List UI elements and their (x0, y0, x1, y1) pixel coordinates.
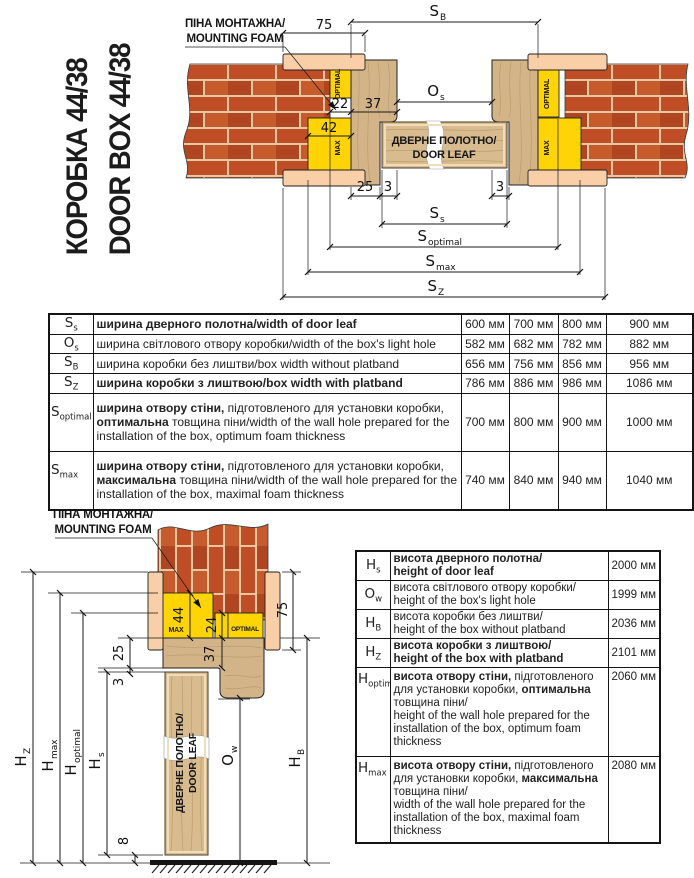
dim-description: ширина коробки з лиштвою/box width with … (93, 374, 461, 394)
bottom-section-diagram: ДВЕРНЕ ПОЛОТНО/ DOOR LEAF MAX OPTIMAL ПІ… (0, 498, 355, 878)
dim-value: 800 мм (509, 393, 558, 451)
dim-symbol: Smax (49, 451, 93, 510)
table-row: Owвисота світлового отвору коробки/heigh… (356, 581, 660, 610)
svg-text:O: O (219, 754, 237, 766)
dim-value: 2060 мм (608, 668, 660, 757)
svg-text:B: B (440, 13, 446, 23)
dim-value: 782 мм (558, 334, 606, 354)
dim-label-sb: S B (429, 2, 446, 23)
dim-label-hs: H s (86, 752, 107, 770)
svg-text:B: B (297, 749, 307, 755)
svg-text:s: s (97, 752, 107, 757)
table-row: Hoptimalвисота отвору стіни, підготовлен… (356, 668, 660, 757)
optimal-label: OPTIMAL (544, 78, 551, 109)
dim-value: 882 мм (606, 334, 693, 354)
table-row: Ssширина дверного полотна/width of door … (49, 314, 693, 334)
dim-42: 42 (321, 121, 338, 136)
dim-37: 37 (365, 97, 382, 112)
door-leaf-label-uk: ДВЕРНЕ ПОЛОТНО/ (174, 713, 186, 813)
svg-text:Z: Z (438, 288, 444, 298)
dim-75: 75 (316, 18, 333, 33)
dim-label-hb: H B (286, 749, 307, 768)
dim-symbol: Hmax (356, 757, 390, 844)
page-title-uk: КОРОБКА 44/38 (56, 53, 99, 255)
mounting-foam-label-uk: ПІНА МОНТАЖНА/ (185, 18, 286, 30)
dim-symbol: Soptimal (49, 393, 93, 451)
svg-text:S: S (417, 227, 427, 245)
dim-44: 44 (172, 607, 187, 624)
dim-75: 75 (276, 602, 291, 619)
dim-value: 940 мм (558, 451, 606, 510)
dim-value: 956 мм (606, 354, 693, 374)
optimal-label: OPTIMAL (231, 626, 259, 633)
svg-text:H: H (286, 756, 304, 767)
table-row: SBширина коробки без лиштви/box width wi… (49, 354, 693, 374)
dim-value: 800 мм (558, 314, 606, 334)
dim-description: висота отвору стіни, підготовленогодля у… (390, 757, 608, 844)
dim-symbol: SZ (49, 374, 93, 394)
page-title: КОРОБКА 44/38 DOOR BOX 44/38 (56, 53, 148, 255)
dim-description: ширина отвору стіни, підготовленого для … (93, 451, 461, 510)
dim-3-right: 3 (496, 180, 504, 195)
dim-value: 1000 мм (606, 393, 693, 451)
dim-37: 37 (203, 646, 218, 663)
mounting-foam-label-en: MOUNTING FOAM (186, 33, 283, 45)
dim-description: висота отвору стіни, підготовленогодля у… (390, 668, 608, 757)
svg-text:optimal: optimal (428, 238, 462, 248)
svg-text:H: H (62, 764, 80, 775)
dim-label-soptimal: S optimal (417, 227, 462, 248)
table-row: Hsвисота дверного полотна/height of door… (356, 551, 660, 581)
dim-value: 2080 мм (608, 757, 660, 844)
dim-25: 25 (357, 180, 374, 195)
dim-label-sz: S Z (427, 277, 444, 298)
door-leaf-label-en: DOOR LEAF (187, 732, 199, 793)
dim-label-hoptimal: H optimal (62, 729, 83, 776)
dim-value: 986 мм (558, 374, 606, 394)
dim-label-smax: S max (425, 252, 456, 273)
dim-value: 900 мм (558, 393, 606, 451)
table-row: HBвисота коробки без лиштви/height of th… (356, 610, 660, 639)
dim-symbol: HB (356, 610, 390, 639)
dim-label-ss: S s (429, 204, 445, 225)
dim-value: 2101 мм (608, 639, 660, 668)
dim-value: 856 мм (558, 354, 606, 374)
door-leaf: ДВЕРНЕ ПОЛОТНО/ DOOR LEAF (164, 672, 209, 855)
dim-symbol: Os (49, 334, 93, 354)
door-leaf-label-en: DOOR LEAF (413, 149, 476, 161)
dim-25: 25 (112, 645, 127, 662)
dim-symbol: Ss (49, 314, 93, 334)
table-row: Osширина світлового отвору коробки/width… (49, 334, 693, 354)
dim-description: ширина отвору стіни, підготовленого для … (93, 393, 461, 451)
svg-text:optimal: optimal (73, 729, 83, 763)
svg-text:O: O (427, 82, 439, 100)
top-section-diagram: ДВЕРНЕ ПОЛОТНО/ DOOR LEAF OPTIMAL MAX OP… (180, 0, 694, 310)
table-row: Smaxширина отвору стіни, підготовленого … (49, 451, 693, 510)
optimal-label: OPTIMAL (335, 68, 342, 99)
dim-label-hmax: H max (39, 739, 60, 772)
max-label: MAX (544, 140, 551, 155)
catalog-page: КОРОБКА 44/38 DOOR BOX 44/38 (0, 0, 694, 878)
dim-3-left: 3 (384, 180, 392, 195)
dim-value: 886 мм (509, 374, 558, 394)
dim-value: 900 мм (606, 314, 693, 334)
dim-description: ширина світлового отвору коробки/width o… (93, 334, 461, 354)
max-label: MAX (169, 627, 184, 634)
svg-text:H: H (86, 758, 104, 769)
dim-symbol: Hs (356, 551, 390, 581)
dim-symbol: Hoptimal (356, 668, 390, 757)
dim-value: 2000 мм (608, 551, 660, 581)
dim-value: 1999 мм (608, 581, 660, 610)
svg-text:s: s (440, 215, 445, 225)
svg-text:S: S (429, 2, 439, 20)
dim-symbol: HZ (356, 639, 390, 668)
dim-description: висота коробки з лиштвою/height of the b… (390, 639, 608, 668)
door-leaf: ДВЕРНЕ ПОЛОТНО/ DOOR LEAF (382, 121, 507, 169)
page-title-en: DOOR BOX 44/38 (99, 53, 142, 255)
table-row: Soptimalширина отвору стіни, підготовлен… (49, 393, 693, 451)
max-label: MAX (335, 140, 342, 155)
dim-value: 656 мм (461, 354, 509, 374)
svg-text:max: max (50, 739, 60, 759)
dim-label-os: O s (427, 82, 445, 103)
dim-label-ow: O w (219, 746, 240, 766)
svg-text:max: max (436, 263, 456, 273)
dim-description: ширина дверного полотна/width of door le… (93, 314, 461, 334)
mounting-foam-label-uk: ПІНА МОНТАЖНА/ (53, 509, 154, 521)
svg-text:s: s (440, 93, 445, 103)
dim-22: 22 (332, 97, 349, 112)
dim-label-hz: H Z (12, 748, 33, 767)
height-table: Hsвисота дверного полотна/height of door… (355, 550, 661, 844)
table-row: Hmaxвисота отвору стіни, підготовленогод… (356, 757, 660, 844)
dim-value: 700 мм (509, 314, 558, 334)
svg-text:S: S (429, 204, 439, 222)
svg-text:S: S (427, 277, 437, 295)
dim-description: ширина коробки без лиштви/box width with… (93, 354, 461, 374)
svg-text:w: w (230, 746, 240, 753)
dim-3: 3 (112, 678, 127, 686)
brick-wall-right (565, 64, 689, 178)
dim-symbol: SB (49, 354, 93, 374)
dim-value: 700 мм (461, 393, 509, 451)
dim-value: 2036 мм (608, 610, 660, 639)
dim-value: 600 мм (461, 314, 509, 334)
svg-text:H: H (12, 755, 30, 766)
floor (150, 860, 277, 873)
mounting-foam-label-en: MOUNTING FOAM (54, 524, 151, 536)
dim-value: 756 мм (509, 354, 558, 374)
dim-description: висота коробки без лиштви/height of the … (390, 610, 608, 639)
svg-text:Z: Z (23, 748, 33, 754)
table-row: HZвисота коробки з лиштвою/height of the… (356, 639, 660, 668)
svg-text:H: H (39, 760, 57, 771)
table-row: SZширина коробки з лиштвою/box width wit… (49, 374, 693, 394)
door-leaf-label-uk: ДВЕРНЕ ПОЛОТНО/ (392, 135, 497, 147)
dim-value: 582 мм (461, 334, 509, 354)
svg-text:S: S (425, 252, 435, 270)
width-table: Ssширина дверного полотна/width of door … (48, 313, 694, 511)
dim-value: 786 мм (461, 374, 509, 394)
dim-value: 1086 мм (606, 374, 693, 394)
dim-8: 8 (117, 837, 132, 845)
dim-value: 840 мм (509, 451, 558, 510)
dim-24: 24 (205, 617, 220, 634)
dim-description: висота дверного полотна/height of door l… (390, 551, 608, 581)
dim-description: висота світлового отвору коробки/height … (390, 581, 608, 610)
dim-value: 1040 мм (606, 451, 693, 510)
dim-value: 740 мм (461, 451, 509, 510)
dim-value: 682 мм (509, 334, 558, 354)
dim-symbol: Ow (356, 581, 390, 610)
